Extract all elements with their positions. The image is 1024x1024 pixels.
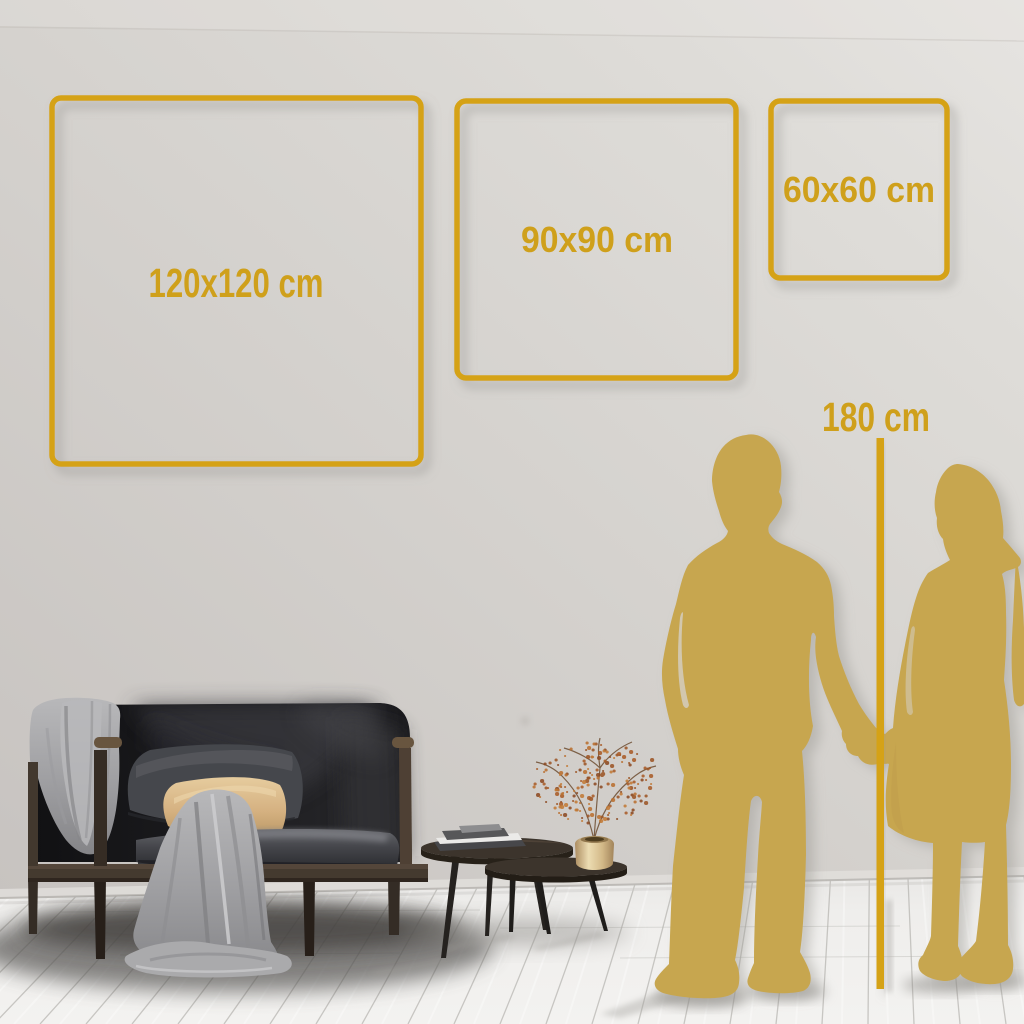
svg-text:60x60 cm: 60x60 cm xyxy=(783,169,935,210)
svg-text:120x120 cm: 120x120 cm xyxy=(149,260,324,306)
svg-text:90x90 cm: 90x90 cm xyxy=(521,219,673,260)
svg-text:180 cm: 180 cm xyxy=(822,394,930,440)
